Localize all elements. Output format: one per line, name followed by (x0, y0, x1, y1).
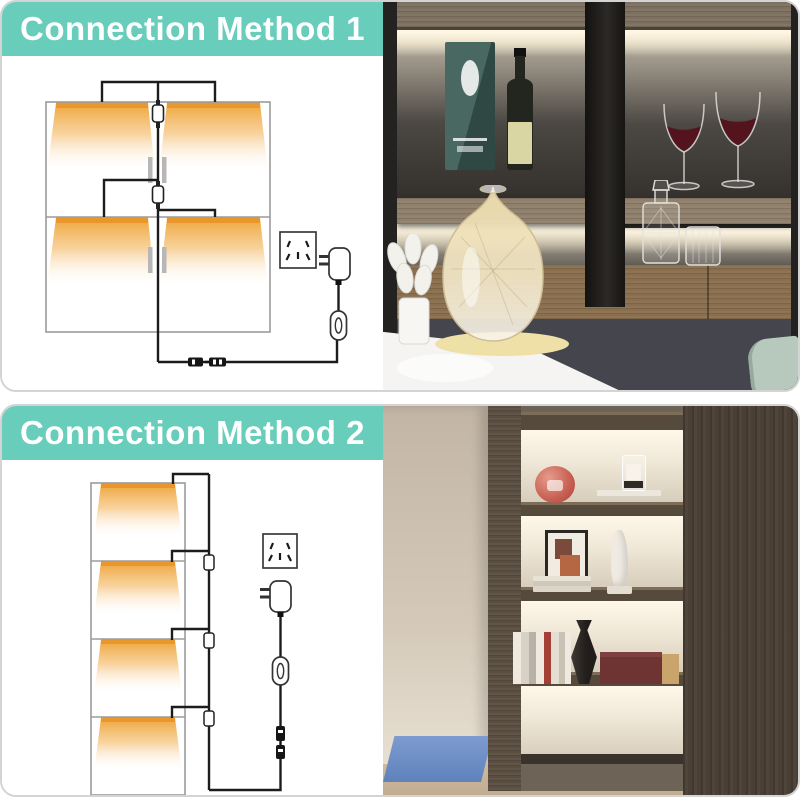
sculpture-base (607, 586, 632, 594)
method-2-left: Connection Method 2 (2, 406, 383, 795)
sphere-label (547, 480, 563, 491)
method-2-wiring-diagram (2, 460, 383, 795)
chair-back (746, 335, 798, 390)
right-wood-panel (683, 406, 798, 795)
bottle-label (508, 122, 532, 164)
whisky-bottle (505, 48, 535, 170)
light-panels (94, 483, 182, 772)
candle (626, 464, 641, 480)
method-2-card: Connection Method 2 (0, 404, 800, 797)
burgundy-box (600, 652, 662, 684)
candle-base-band (624, 481, 643, 488)
dc-connector-pair-icon (188, 358, 226, 367)
power-adapter-icon (319, 248, 350, 285)
power-outlet-icon (263, 534, 297, 568)
dc-connector-pair-icon (276, 726, 285, 759)
box-text-line (457, 146, 483, 152)
box-oval-label (461, 60, 479, 96)
method-1-title: Connection Method 1 (20, 10, 365, 48)
inline-switch-icon (331, 311, 347, 340)
method-1-photo (383, 2, 798, 390)
candle-book (597, 490, 661, 499)
method-1-wiring-diagram (2, 56, 383, 390)
method-2-diagram (2, 460, 383, 795)
base-shadow (521, 754, 683, 764)
candle-holder (622, 455, 646, 491)
method-1-diagram (2, 56, 383, 390)
wires (172, 474, 281, 790)
power-outlet-icon (280, 232, 316, 268)
glass-vase (427, 185, 559, 349)
burgundy-box-side (662, 654, 679, 684)
counter-seam (707, 265, 709, 319)
inline-switch-icon (273, 657, 289, 685)
niche-base (521, 686, 683, 758)
white-tulips (383, 234, 445, 350)
unit-side-panel (488, 406, 521, 791)
whisky-gift-box (445, 42, 495, 170)
method-2-title-banner: Connection Method 2 (2, 406, 383, 460)
frame-pillar-right (791, 2, 798, 390)
box-text-line (453, 138, 487, 141)
product-infographic: Connection Method 1 (0, 0, 800, 800)
method-2-photo (383, 406, 798, 795)
led-glow-strip (625, 30, 793, 56)
crystal-tumbler (685, 226, 721, 266)
blue-rug (383, 736, 492, 782)
crystal-decanter (641, 180, 683, 268)
books-row (513, 632, 571, 684)
power-adapter-icon (260, 581, 291, 617)
top-board (521, 412, 683, 430)
books-stack (533, 576, 591, 592)
shelf-board (521, 502, 683, 516)
method-1-card: Connection Method 1 (0, 0, 800, 392)
method-1-left: Connection Method 1 (2, 2, 383, 390)
white-sculpture (611, 530, 628, 588)
frame-pillar-center (585, 2, 625, 307)
coral-sphere (535, 466, 575, 503)
table-plate (397, 354, 493, 382)
method-1-title-banner: Connection Method 1 (2, 2, 383, 56)
art-block-rust (560, 555, 580, 577)
method-2-title: Connection Method 2 (20, 414, 365, 452)
